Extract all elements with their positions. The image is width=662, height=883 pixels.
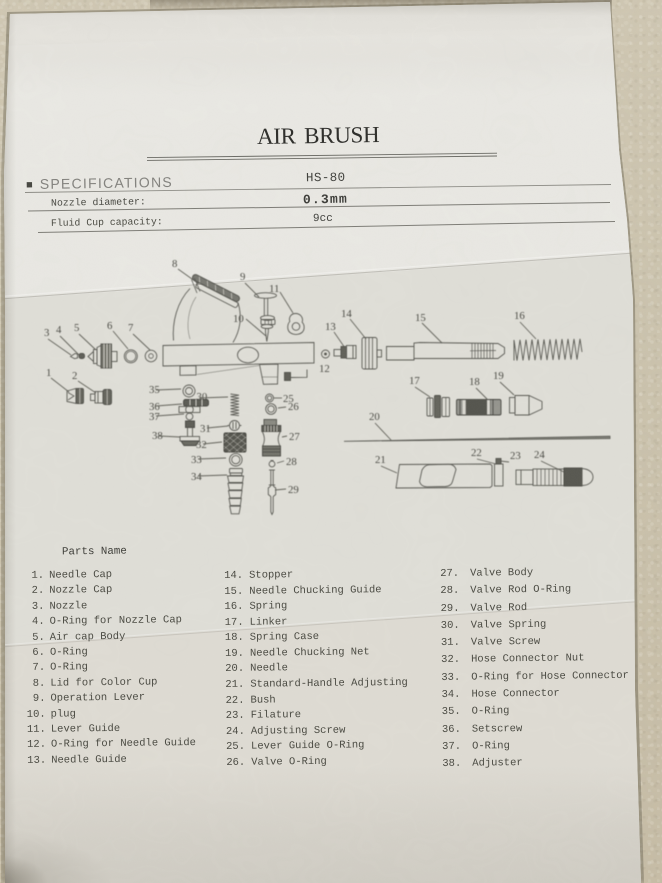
svg-text:33: 33 xyxy=(191,454,202,466)
svg-text:4: 4 xyxy=(56,324,62,336)
svg-text:20: 20 xyxy=(369,411,380,423)
svg-text:10: 10 xyxy=(233,313,244,325)
svg-text:23: 23 xyxy=(510,450,521,462)
svg-text:31: 31 xyxy=(200,423,211,435)
svg-text:6: 6 xyxy=(107,320,113,332)
svg-text:14: 14 xyxy=(341,308,352,320)
svg-text:3: 3 xyxy=(44,327,49,339)
svg-text:27: 27 xyxy=(289,431,300,443)
svg-text:24: 24 xyxy=(534,449,545,461)
svg-text:29: 29 xyxy=(288,484,299,496)
svg-text:9: 9 xyxy=(240,271,245,283)
svg-text:8: 8 xyxy=(172,258,177,270)
svg-text:13: 13 xyxy=(325,321,336,333)
svg-text:16: 16 xyxy=(514,310,525,322)
svg-text:18: 18 xyxy=(469,376,480,388)
svg-text:22: 22 xyxy=(471,447,482,459)
svg-text:15: 15 xyxy=(415,312,426,324)
svg-text:1: 1 xyxy=(46,367,51,379)
svg-text:17: 17 xyxy=(409,375,420,387)
svg-text:2: 2 xyxy=(72,370,77,382)
svg-text:37: 37 xyxy=(149,411,160,423)
svg-text:26: 26 xyxy=(288,401,299,413)
svg-text:28: 28 xyxy=(286,456,297,468)
svg-text:21: 21 xyxy=(375,454,386,466)
svg-text:34: 34 xyxy=(191,471,202,483)
svg-text:5: 5 xyxy=(74,322,79,334)
svg-text:19: 19 xyxy=(493,370,504,382)
svg-text:7: 7 xyxy=(128,322,134,334)
svg-text:12: 12 xyxy=(319,363,330,375)
